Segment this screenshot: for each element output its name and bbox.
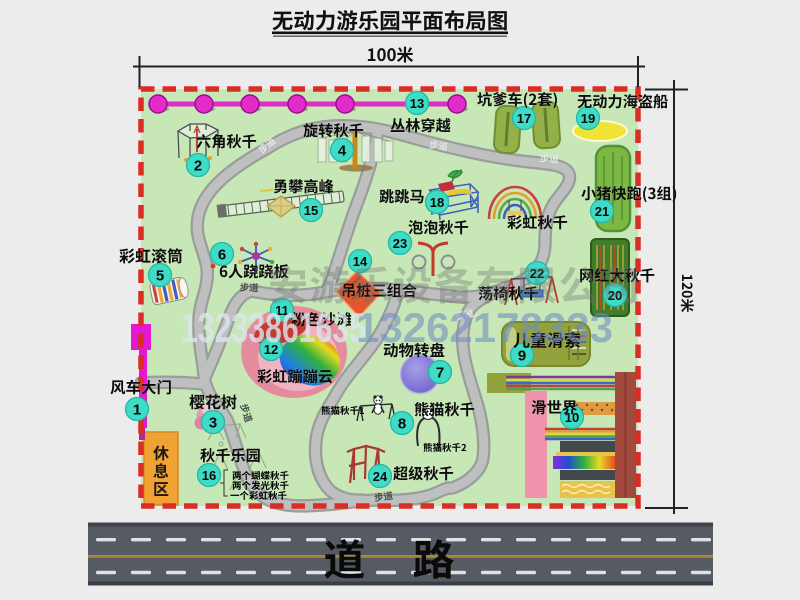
svg-text:4: 4: [338, 142, 347, 159]
svg-text:18: 18: [430, 195, 444, 210]
svg-text:13: 13: [410, 96, 424, 111]
svg-text:13262178333: 13262178333: [356, 304, 613, 351]
svg-text:3: 3: [209, 414, 217, 431]
svg-text:23: 23: [393, 236, 407, 251]
svg-text:13233861635: 13233861635: [181, 304, 366, 351]
svg-text:21: 21: [595, 204, 609, 219]
svg-text:17: 17: [517, 111, 531, 126]
svg-text:7: 7: [436, 364, 444, 381]
svg-text:24: 24: [373, 469, 388, 484]
svg-text:2: 2: [194, 157, 202, 174]
svg-text:1: 1: [133, 401, 141, 418]
svg-text:16: 16: [202, 468, 216, 483]
svg-text:6: 6: [218, 246, 226, 263]
svg-text:8: 8: [398, 415, 406, 432]
svg-text:19: 19: [581, 111, 595, 126]
svg-text:14: 14: [353, 254, 368, 269]
svg-text:15: 15: [304, 203, 318, 218]
svg-text:5: 5: [156, 267, 164, 284]
